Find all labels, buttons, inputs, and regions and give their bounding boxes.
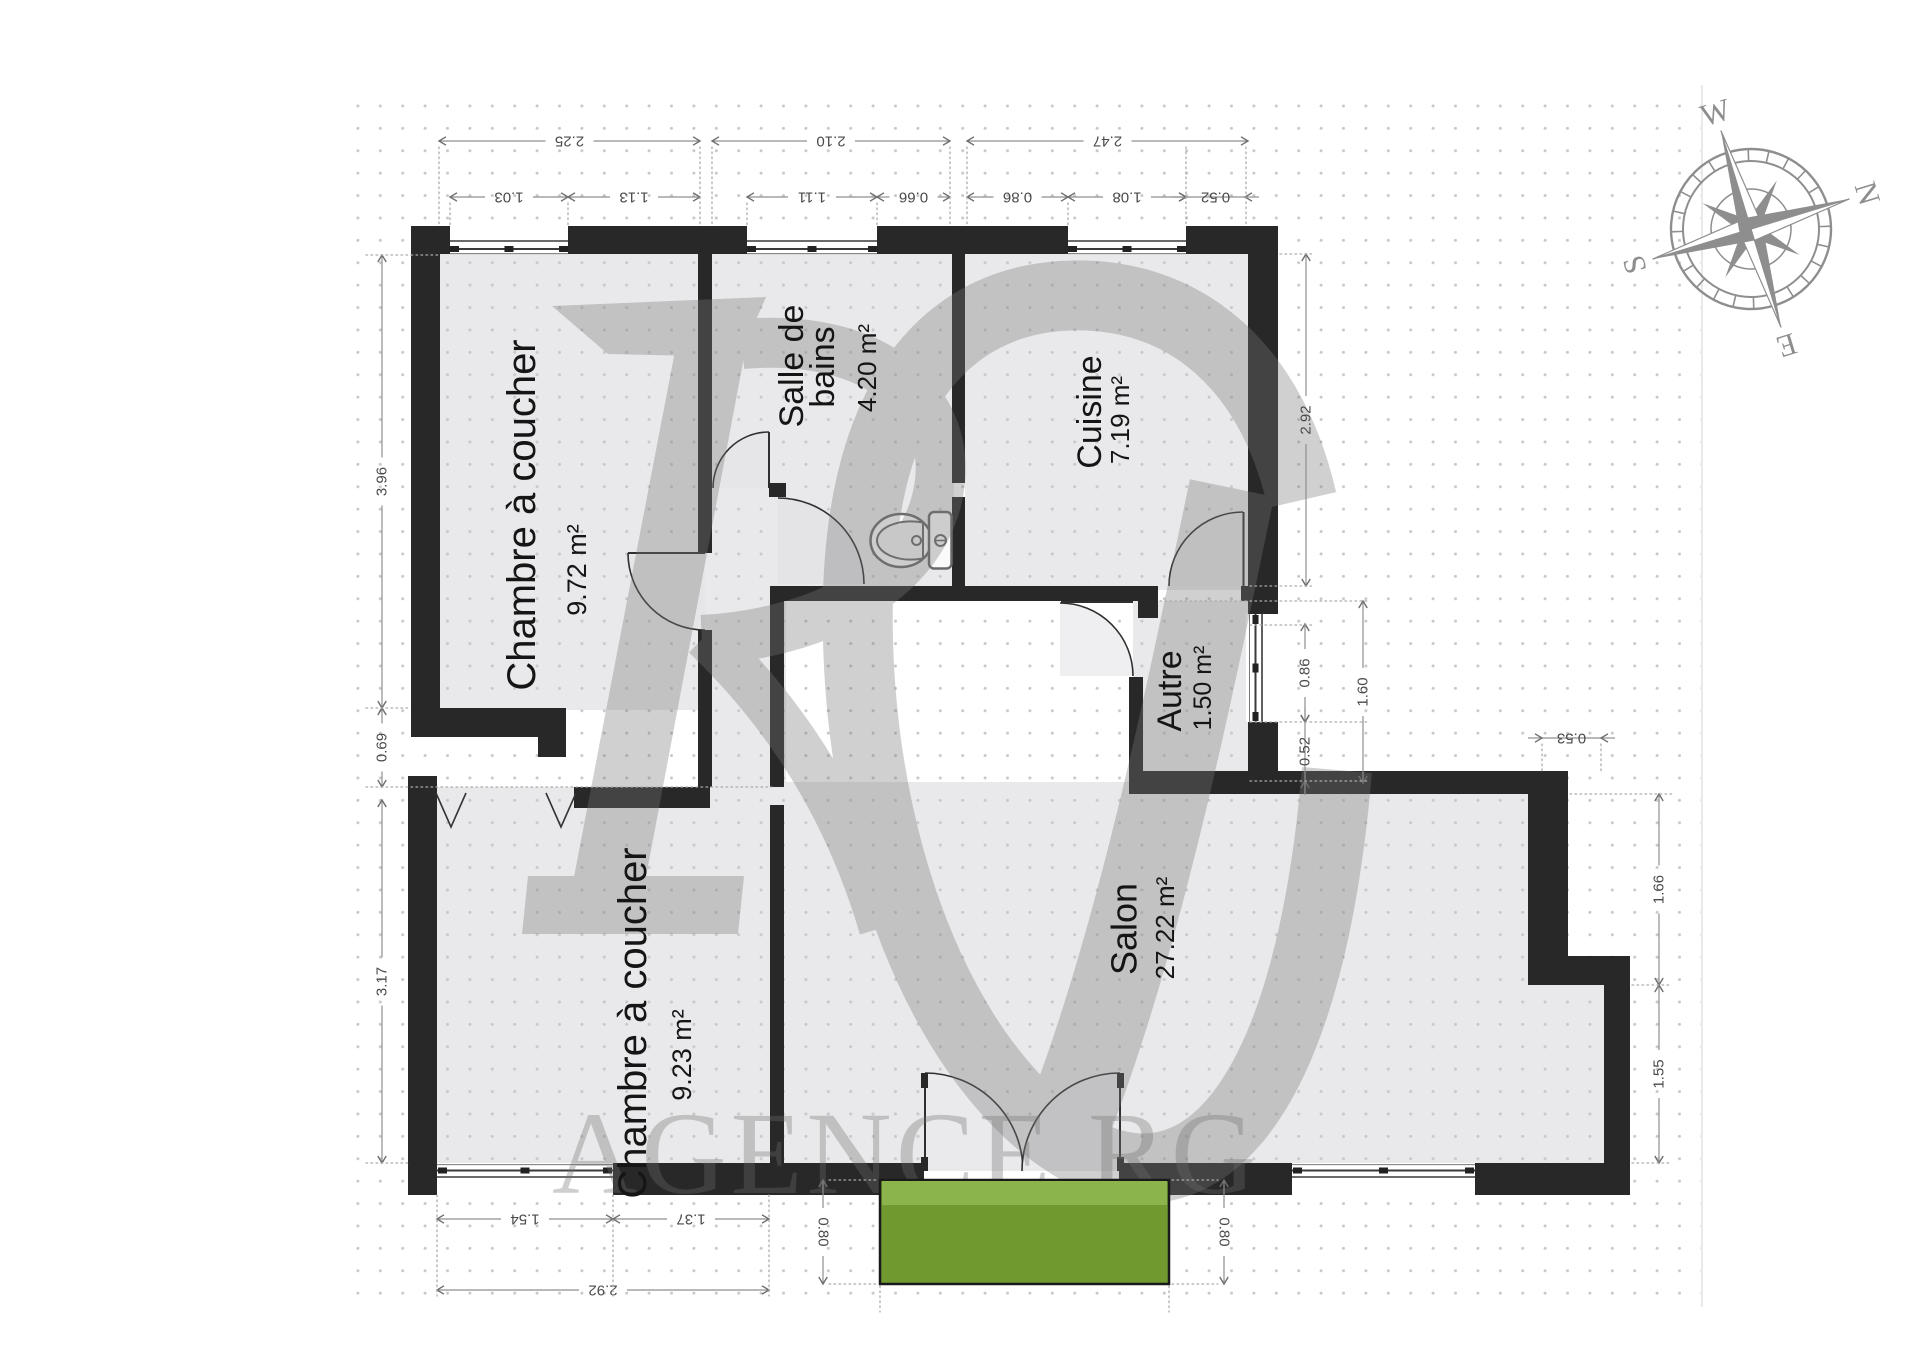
svg-text:0.52: 0.52 xyxy=(1297,737,1314,766)
svg-text:1.03: 1.03 xyxy=(494,189,523,206)
svg-text:27.22 m²: 27.22 m² xyxy=(1150,876,1180,979)
svg-text:Cuisine: Cuisine xyxy=(1071,355,1109,468)
svg-text:Chambre à coucher: Chambre à coucher xyxy=(611,847,655,1198)
svg-text:9.72 m²: 9.72 m² xyxy=(562,524,592,616)
svg-text:bains: bains xyxy=(804,326,842,407)
svg-text:0.69: 0.69 xyxy=(374,733,391,762)
svg-text:0.80: 0.80 xyxy=(815,1217,832,1246)
svg-text:0.86: 0.86 xyxy=(1003,189,1032,206)
svg-text:3.96: 3.96 xyxy=(374,467,391,496)
svg-text:0.66: 0.66 xyxy=(899,189,928,206)
svg-text:Autre: Autre xyxy=(1151,650,1189,731)
svg-text:1.37: 1.37 xyxy=(676,1211,705,1228)
svg-text:Chambre à coucher: Chambre à coucher xyxy=(500,339,544,690)
svg-text:3.17: 3.17 xyxy=(374,967,391,996)
svg-text:1.55: 1.55 xyxy=(1651,1059,1668,1088)
svg-text:0.86: 0.86 xyxy=(1297,658,1314,687)
svg-text:4.20 m²: 4.20 m² xyxy=(852,324,882,412)
svg-text:2.92: 2.92 xyxy=(1298,405,1315,434)
svg-text:0.80: 0.80 xyxy=(1216,1217,1233,1246)
svg-text:2.25: 2.25 xyxy=(555,133,584,150)
svg-text:Salon: Salon xyxy=(1104,883,1145,975)
svg-text:0.52: 0.52 xyxy=(1201,189,1230,206)
svg-text:1.11: 1.11 xyxy=(798,189,826,206)
svg-text:1.08: 1.08 xyxy=(1112,189,1141,206)
svg-text:1.66: 1.66 xyxy=(1651,875,1668,904)
svg-text:7.19 m²: 7.19 m² xyxy=(1105,376,1135,464)
svg-text:1.54: 1.54 xyxy=(510,1211,539,1228)
svg-text:1.13: 1.13 xyxy=(619,189,648,206)
svg-text:1.50 m²: 1.50 m² xyxy=(1189,646,1217,731)
svg-text:1.60: 1.60 xyxy=(1355,677,1372,706)
svg-text:2.10: 2.10 xyxy=(816,133,845,150)
svg-text:2.47: 2.47 xyxy=(1093,133,1122,150)
svg-text:0.53: 0.53 xyxy=(1557,730,1586,747)
svg-text:9.23 m²: 9.23 m² xyxy=(667,1009,697,1101)
